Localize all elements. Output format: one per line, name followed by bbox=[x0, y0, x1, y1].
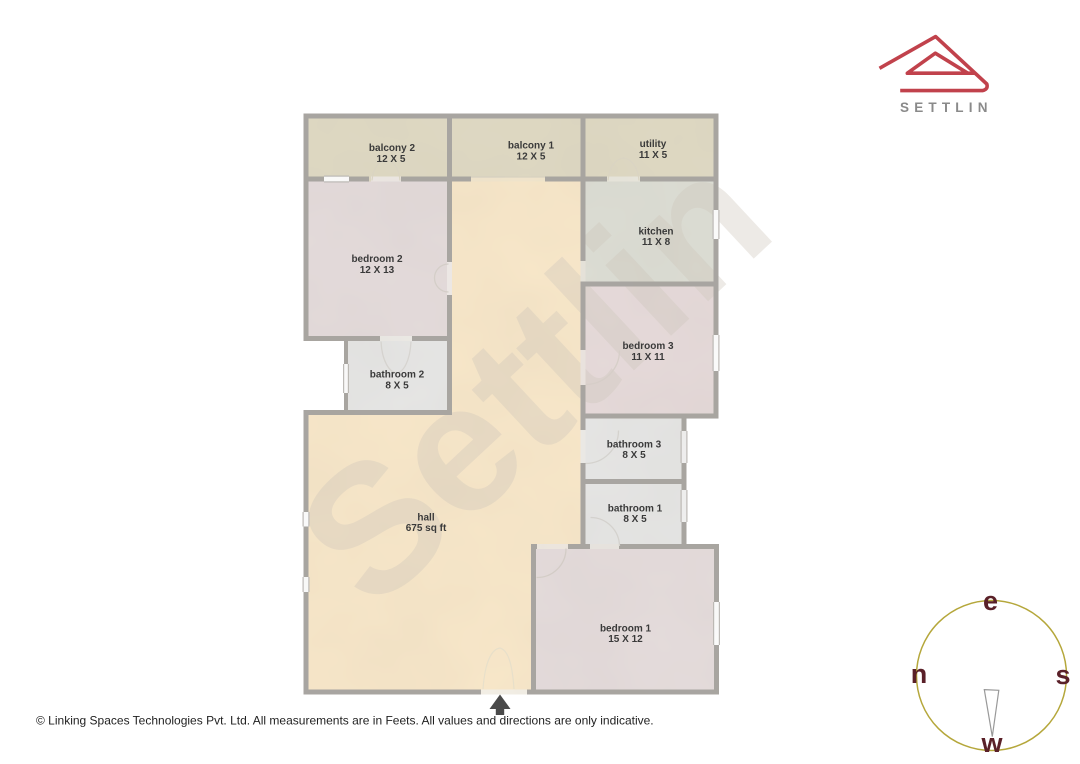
svg-text:12 X 5: 12 X 5 bbox=[377, 154, 406, 165]
svg-text:8 X 5: 8 X 5 bbox=[623, 514, 647, 525]
svg-text:balcony 2: balcony 2 bbox=[369, 143, 416, 154]
svg-text:w: w bbox=[980, 728, 1003, 758]
svg-text:bathroom 3: bathroom 3 bbox=[607, 440, 662, 451]
svg-text:SETTLIN: SETTLIN bbox=[900, 100, 993, 115]
svg-text:kitchen: kitchen bbox=[638, 227, 673, 238]
svg-text:bedroom 2: bedroom 2 bbox=[351, 254, 403, 265]
svg-text:© Linking Spaces Technologies: © Linking Spaces Technologies Pvt. Ltd. … bbox=[36, 714, 654, 728]
svg-text:n: n bbox=[911, 659, 928, 689]
svg-text:11 X 8: 11 X 8 bbox=[642, 237, 671, 248]
svg-text:12 X 5: 12 X 5 bbox=[517, 152, 546, 163]
svg-text:11 X 11: 11 X 11 bbox=[631, 352, 665, 363]
svg-text:bedroom 1: bedroom 1 bbox=[600, 624, 652, 635]
svg-text:balcony 1: balcony 1 bbox=[508, 141, 555, 152]
svg-text:hall: hall bbox=[417, 513, 434, 524]
svg-text:8 X 5: 8 X 5 bbox=[622, 450, 646, 461]
svg-text:bathroom 1: bathroom 1 bbox=[608, 504, 663, 515]
svg-text:e: e bbox=[983, 586, 998, 616]
svg-text:675 sq ft: 675 sq ft bbox=[406, 523, 447, 534]
svg-text:bedroom 3: bedroom 3 bbox=[622, 341, 674, 352]
svg-text:bathroom 2: bathroom 2 bbox=[370, 370, 425, 381]
svg-text:15 X 12: 15 X 12 bbox=[608, 634, 643, 645]
svg-text:utility: utility bbox=[640, 139, 667, 150]
svg-text:12 X 13: 12 X 13 bbox=[360, 265, 395, 276]
svg-text:11 X 5: 11 X 5 bbox=[639, 150, 668, 161]
svg-text:8 X 5: 8 X 5 bbox=[385, 381, 409, 392]
svg-text:s: s bbox=[1055, 660, 1070, 690]
